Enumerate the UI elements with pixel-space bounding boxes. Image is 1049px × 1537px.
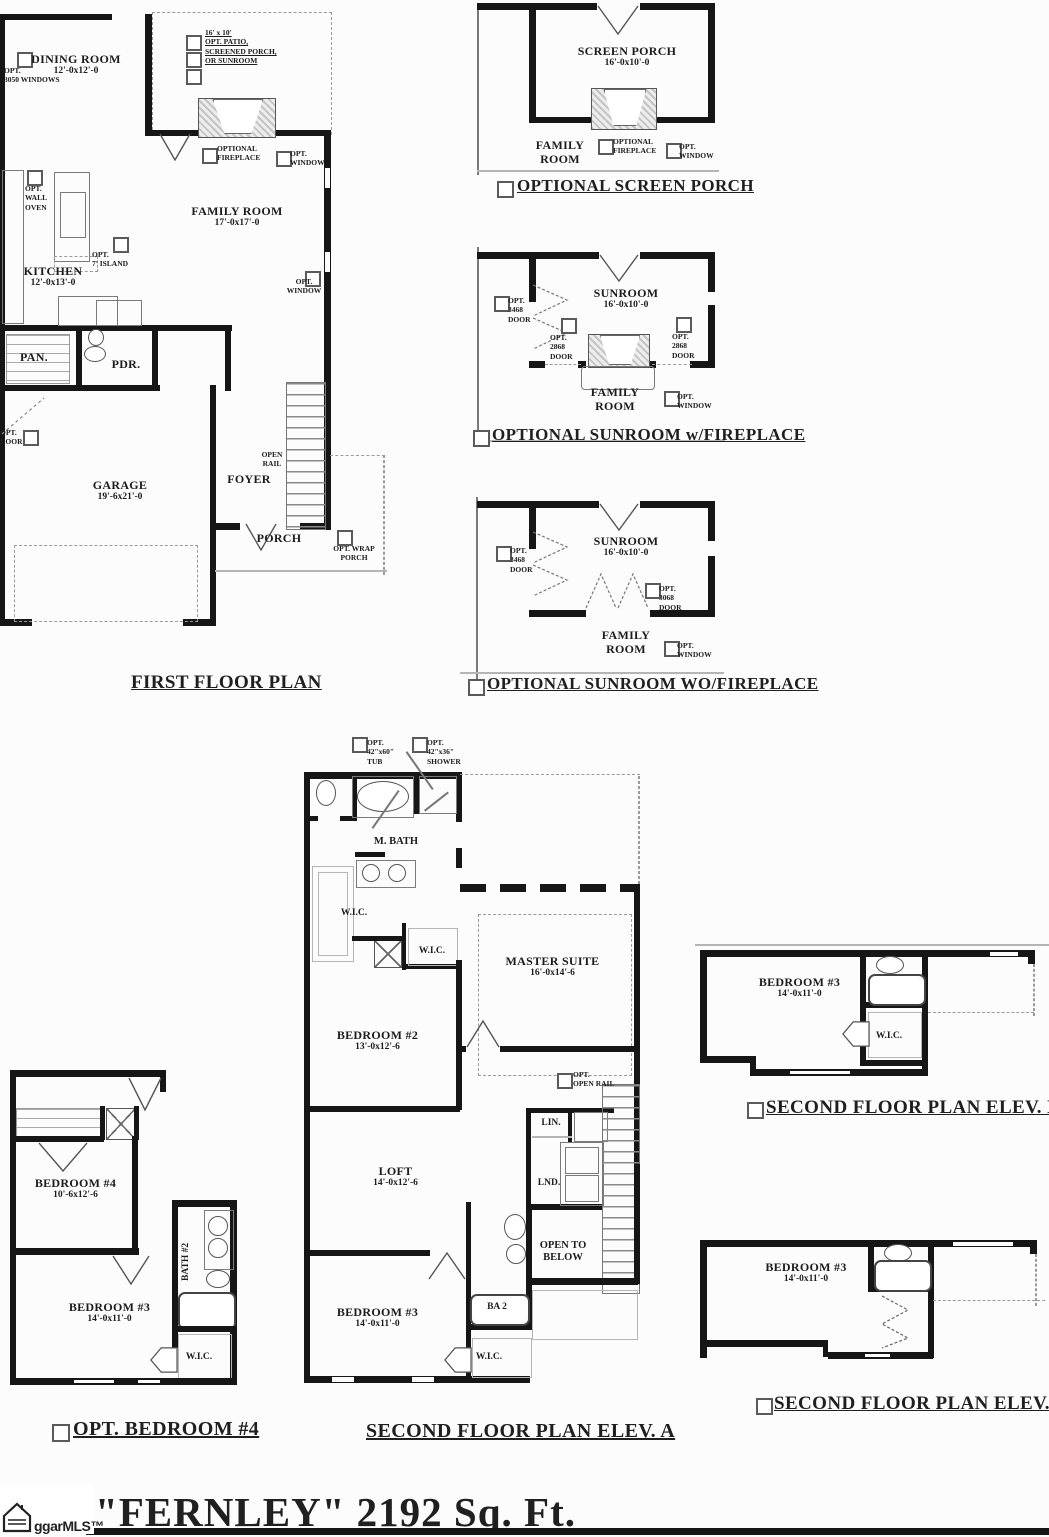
- floor-plan-sheet: DINING ROOM 12'-0x12'-0 OPT. 3050 WINDOW…: [0, 0, 1049, 1537]
- mls-watermark-text: ggarMLS™: [34, 1518, 104, 1534]
- mls-house-icon: [0, 1500, 34, 1534]
- title-underline: [86, 1528, 1049, 1535]
- mls-watermark: ggarMLS™: [0, 1484, 94, 1534]
- footer: "FERNLEY" 2192 Sq. Ft. ggarMLS™: [0, 0, 1049, 1537]
